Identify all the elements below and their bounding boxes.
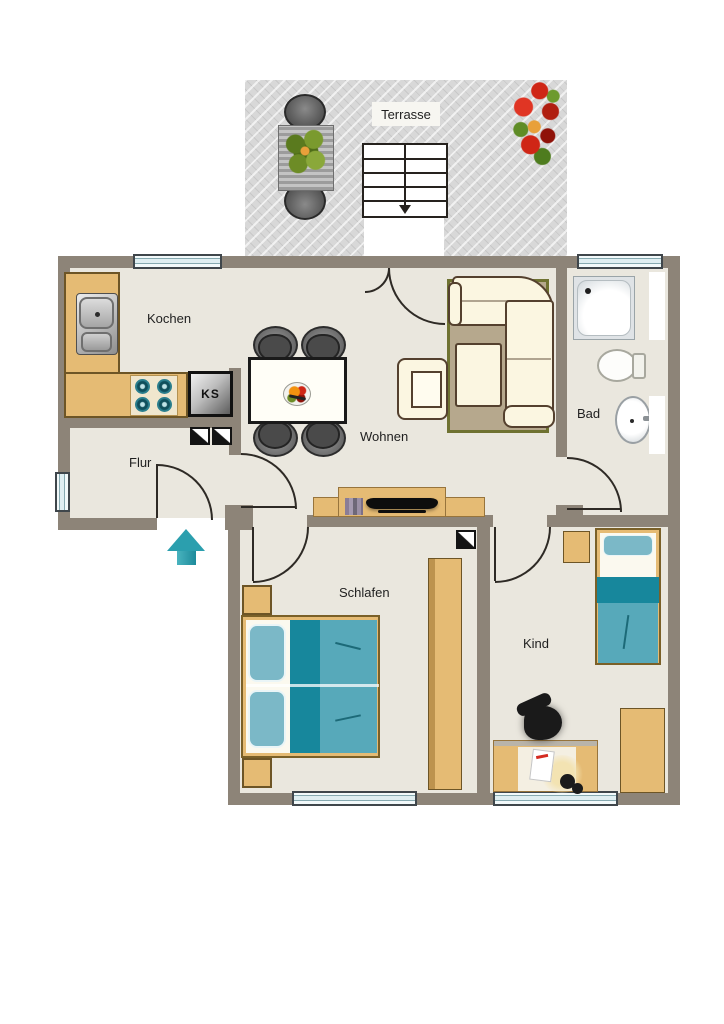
pillow xyxy=(248,624,286,682)
single-bed xyxy=(595,528,661,665)
toilet xyxy=(597,349,637,382)
sofa-armrest xyxy=(503,405,555,428)
fruit-bowl xyxy=(283,382,311,406)
wardrobe-kind xyxy=(620,708,665,793)
shower xyxy=(573,276,635,340)
sofa-right-section xyxy=(505,300,554,422)
wall-schlafen-kind xyxy=(477,527,490,793)
sofa-seam xyxy=(455,300,551,302)
floorplan: Terrasse xyxy=(0,0,724,1024)
schlafen-door-gap xyxy=(252,515,307,527)
desk-lamp xyxy=(572,783,583,794)
stove xyxy=(130,375,178,416)
dining-chair-seat xyxy=(306,421,340,449)
entry-arrow-icon xyxy=(167,529,205,551)
bath-shelf xyxy=(649,272,665,340)
kind-label: Kind xyxy=(523,636,549,651)
books xyxy=(345,498,363,515)
wall-lower-left xyxy=(228,527,240,805)
window-flur xyxy=(55,472,70,512)
nightstand xyxy=(242,585,272,615)
flur-label: Flur xyxy=(129,455,151,470)
stove-burner xyxy=(135,397,150,412)
desk xyxy=(493,740,598,792)
double-bed xyxy=(241,615,380,758)
washbasin xyxy=(615,396,651,444)
schlafen-corner-marker xyxy=(456,530,476,549)
blanket xyxy=(598,603,658,663)
bed-seam xyxy=(246,684,379,687)
stove-burner xyxy=(157,379,172,394)
stairs-center-line xyxy=(404,145,406,207)
flower-bed xyxy=(510,80,564,170)
nightstand-kind xyxy=(563,531,590,563)
kitchen-sink xyxy=(76,293,118,355)
wardrobe-schlafen xyxy=(428,558,462,790)
armchair xyxy=(397,358,448,420)
terrace-plant xyxy=(281,122,329,180)
nightstand xyxy=(242,758,272,788)
sofa-armrest xyxy=(448,282,462,326)
sofa-seam xyxy=(507,358,551,360)
tv-stand xyxy=(378,510,426,513)
sink-drain-icon xyxy=(95,312,100,317)
stove-burner xyxy=(135,379,150,394)
fridge-label: KS xyxy=(201,387,220,401)
wohnen-label: Wohnen xyxy=(360,429,408,444)
bad-label: Bad xyxy=(577,406,600,421)
terrasse-label-box: Terrasse xyxy=(372,102,440,126)
stairs xyxy=(362,143,448,218)
kochen-label: Kochen xyxy=(147,311,191,326)
shower-drain-icon xyxy=(585,288,591,294)
pillow xyxy=(603,535,653,556)
tv xyxy=(366,498,438,509)
window-kochen xyxy=(133,254,222,269)
basin-drain-icon xyxy=(630,419,634,423)
stove-burner xyxy=(157,397,172,412)
stairs-down-arrow-icon xyxy=(399,205,411,214)
window-schlafen xyxy=(292,791,417,806)
schlafen-label: Schlafen xyxy=(339,585,390,600)
window-bad xyxy=(577,254,663,269)
coffee-table xyxy=(455,343,502,407)
dining-chair-seat xyxy=(258,421,292,449)
entry-arrow-stem xyxy=(177,551,196,565)
flur-corner-marker xyxy=(212,427,232,445)
wall-mid-seg1 xyxy=(240,515,252,527)
terrasse-label: Terrasse xyxy=(381,107,431,122)
bath-shelf xyxy=(649,396,665,454)
toilet-tank xyxy=(632,353,646,379)
pillow xyxy=(248,690,286,748)
paper xyxy=(529,749,555,782)
blanket-fold xyxy=(597,577,659,603)
wall-flur-bottom xyxy=(58,518,157,530)
wall-right xyxy=(668,256,680,805)
kind-door-gap xyxy=(493,515,547,527)
window-kind xyxy=(493,791,618,806)
fridge: KS xyxy=(188,371,233,417)
flur-corner-marker xyxy=(190,427,210,445)
wall-bad-left xyxy=(556,268,567,457)
